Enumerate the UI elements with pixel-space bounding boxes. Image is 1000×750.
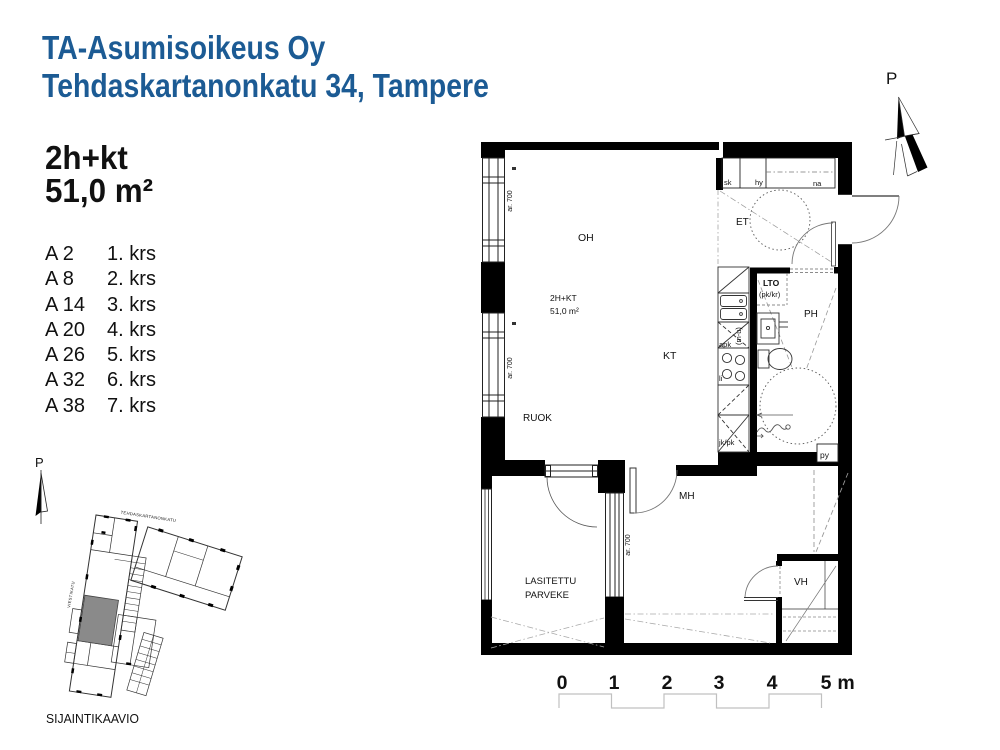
svg-text:1: 1 — [609, 672, 620, 694]
svg-text:VH: VH — [794, 577, 808, 588]
svg-text:apk: apk — [719, 340, 731, 349]
svg-text:3: 3 — [714, 672, 725, 694]
svg-text:jk/pk: jk/pk — [718, 438, 735, 447]
svg-text:KT: KT — [663, 350, 677, 362]
svg-text:RUOK: RUOK — [523, 413, 552, 424]
svg-text:sk: sk — [724, 178, 732, 187]
svg-text:ar. 700: ar. 700 — [507, 357, 514, 379]
svg-text:OH: OH — [578, 232, 594, 244]
svg-text:ar. 700: ar. 700 — [507, 190, 514, 212]
svg-text:na: na — [813, 179, 822, 188]
svg-text:PARVEKE: PARVEKE — [525, 590, 569, 601]
svg-text:li: li — [719, 374, 723, 383]
svg-text:hy: hy — [755, 178, 763, 187]
svg-text:py: py — [820, 450, 830, 460]
svg-text:ET: ET — [736, 217, 749, 228]
svg-text:P: P — [886, 69, 897, 88]
svg-text:MH: MH — [679, 491, 695, 502]
svg-text:2: 2 — [662, 672, 673, 694]
svg-text:4: 4 — [767, 672, 778, 694]
svg-text:VIESTIKATU: VIESTIKATU — [66, 581, 76, 609]
svg-text:PH: PH — [804, 309, 818, 320]
svg-text:2H+KT: 2H+KT — [550, 293, 577, 303]
svg-text:LTO: LTO — [763, 278, 780, 288]
svg-text:m: m — [837, 672, 854, 694]
svg-text:ar. 700: ar. 700 — [625, 534, 632, 556]
svg-text:SIJAINTIKAAVIO: SIJAINTIKAAVIO — [46, 711, 139, 726]
svg-text:0: 0 — [557, 672, 568, 694]
svg-text:51,0 m²: 51,0 m² — [550, 306, 579, 316]
svg-text:P: P — [35, 455, 44, 470]
svg-text:LASITETTU: LASITETTU — [525, 576, 576, 587]
svg-text:5: 5 — [821, 672, 832, 694]
svg-text:(m-u): (m-u) — [734, 327, 743, 345]
